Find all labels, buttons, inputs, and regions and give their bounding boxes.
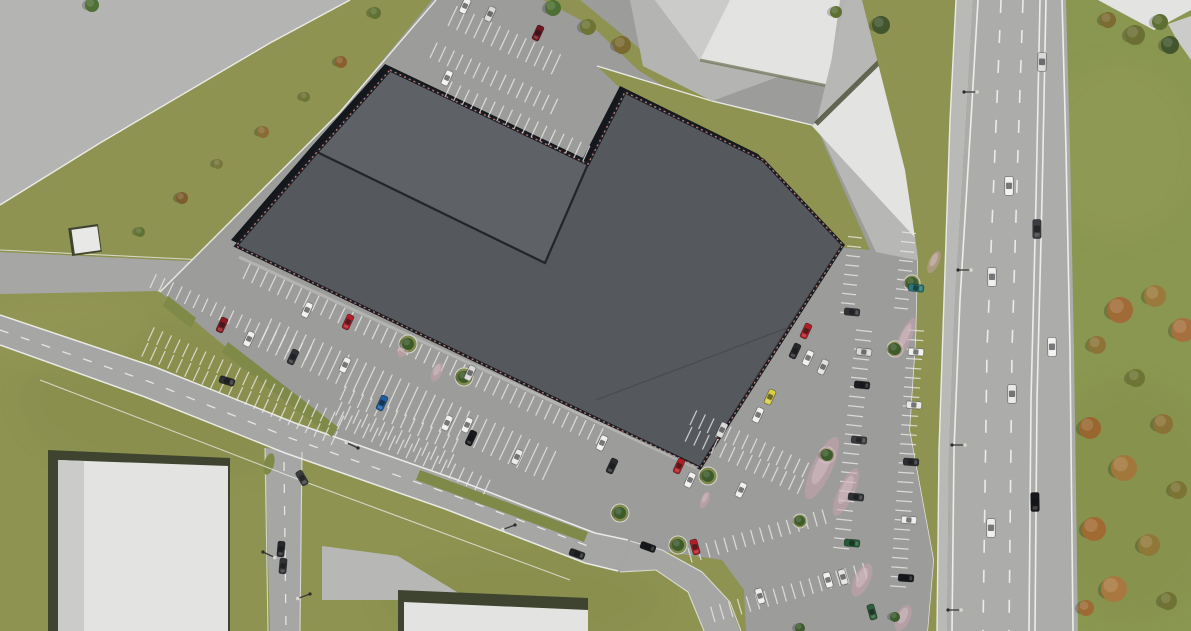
car-glass [1049, 344, 1055, 351]
car [988, 268, 997, 287]
car-hood-highlight [1034, 233, 1039, 236]
car [279, 558, 288, 574]
tree-highlight [1173, 320, 1186, 333]
tree-highlight [301, 93, 307, 99]
tree-highlight [1129, 370, 1139, 380]
tree-highlight [370, 8, 377, 15]
tree-highlight [796, 624, 802, 630]
tree-highlight [1146, 287, 1158, 299]
tree-highlight [1171, 482, 1181, 492]
car [1008, 385, 1017, 404]
car [1005, 177, 1014, 196]
car [1031, 492, 1040, 511]
car-hood-highlight [862, 438, 865, 443]
car-hood-highlight [1050, 351, 1055, 355]
tree-highlight [1161, 593, 1171, 603]
car-glass [849, 309, 855, 315]
tree-highlight [1090, 337, 1100, 347]
tree-highlight [615, 37, 625, 47]
tree-highlight [1155, 416, 1166, 427]
car-hood-highlight [917, 403, 920, 408]
aerial-site-render: Aerial 3D site-plan rendering of a retai… [0, 0, 1191, 631]
car-glass [1039, 59, 1045, 66]
street-light-head [273, 556, 277, 560]
street-light-pole [356, 446, 359, 449]
car-hood-highlight [909, 576, 912, 581]
car-glass [278, 546, 284, 552]
tree-highlight [582, 20, 591, 29]
tree-highlight [831, 7, 838, 14]
car-glass [906, 517, 912, 523]
tree-highlight [1110, 299, 1124, 313]
car-glass [859, 382, 865, 388]
car-hood-highlight [988, 532, 993, 535]
car-glass [908, 459, 914, 465]
tree-highlight [258, 127, 265, 134]
car [851, 436, 867, 445]
street-light-pole [261, 550, 264, 553]
car [844, 308, 860, 317]
tree-highlight [822, 450, 829, 457]
tree-highlight [796, 517, 802, 523]
car-glass [911, 402, 917, 408]
tree-highlight [336, 57, 343, 64]
car [908, 348, 924, 356]
street-light-head [969, 268, 973, 272]
car [901, 516, 917, 524]
car [848, 493, 864, 502]
car-hood-highlight [867, 350, 870, 355]
car [1033, 220, 1042, 239]
tree-highlight [1140, 536, 1152, 548]
car-glass [1034, 226, 1040, 232]
street-light-pole [950, 443, 953, 446]
tree-highlight [136, 228, 142, 234]
car [1048, 337, 1057, 356]
car-glass [989, 274, 995, 280]
car [277, 541, 286, 557]
street-light-head [296, 597, 300, 601]
street-light-head [501, 528, 505, 532]
car-glass [853, 494, 859, 500]
car-glass [1009, 391, 1015, 397]
car-glass [988, 525, 994, 531]
car [854, 381, 870, 390]
street-light-head [975, 90, 979, 94]
car-glass [861, 349, 867, 355]
tree-highlight [1080, 601, 1089, 610]
car-glass [903, 575, 909, 581]
tree-highlight [1104, 578, 1118, 592]
site-plan-canvas: Aerial 3D site-plan rendering of a retai… [0, 0, 1191, 631]
white-building-southwest-facet [58, 460, 84, 631]
tree-highlight [891, 613, 897, 619]
car [906, 401, 922, 409]
car-glass [1006, 183, 1012, 189]
tree-highlight [615, 508, 622, 515]
tree-highlight [874, 17, 884, 27]
tree-highlight [890, 344, 897, 351]
car-hood-highlight [919, 350, 922, 355]
car [903, 458, 919, 466]
car-glass [913, 349, 919, 355]
car-hood-highlight [1009, 398, 1014, 401]
tree-highlight [214, 160, 220, 166]
tree-highlight [1102, 13, 1111, 22]
car [856, 348, 872, 357]
car-glass [849, 540, 855, 546]
car-glass [1032, 499, 1038, 506]
car-glass [280, 563, 286, 569]
car-hood-highlight [1039, 66, 1044, 70]
car-hood-highlight [855, 310, 858, 315]
car-glass [856, 437, 862, 443]
street-light-head [959, 608, 963, 612]
car-hood-highlight [1033, 506, 1038, 510]
tree-highlight [1114, 457, 1128, 471]
tree-highlight [403, 339, 410, 346]
tree-highlight [703, 471, 710, 478]
car-hood-highlight [859, 495, 862, 500]
car [987, 519, 996, 538]
tree-highlight [1127, 27, 1138, 38]
tree-highlight [547, 1, 556, 10]
tree-highlight [1081, 419, 1093, 431]
car-hood-highlight [989, 281, 994, 284]
tree-highlight [1154, 15, 1163, 24]
car [1038, 52, 1047, 71]
street-light-pole [513, 523, 516, 526]
tree-highlight [1084, 519, 1097, 532]
car-hood-highlight [855, 541, 858, 546]
utility-hut [71, 226, 100, 253]
car-hood-highlight [919, 286, 922, 291]
car-hood-highlight [1006, 190, 1011, 193]
car [844, 539, 860, 548]
tree-highlight [673, 540, 680, 547]
tree-highlight [177, 193, 184, 200]
street-light-head [344, 441, 348, 445]
car-glass [913, 285, 919, 291]
tree-highlight [1163, 37, 1173, 47]
street-light-pole [956, 268, 959, 271]
street-light-pole [962, 90, 965, 93]
car-hood-highlight [278, 552, 283, 555]
car-hood-highlight [865, 383, 868, 388]
street-light-pole [308, 592, 311, 595]
street-light-pole [946, 608, 949, 611]
car [908, 284, 924, 293]
street-light-head [963, 443, 967, 447]
car-hood-highlight [914, 460, 917, 465]
car-hood-highlight [912, 518, 915, 523]
car [898, 574, 914, 582]
car-hood-highlight [280, 569, 285, 572]
